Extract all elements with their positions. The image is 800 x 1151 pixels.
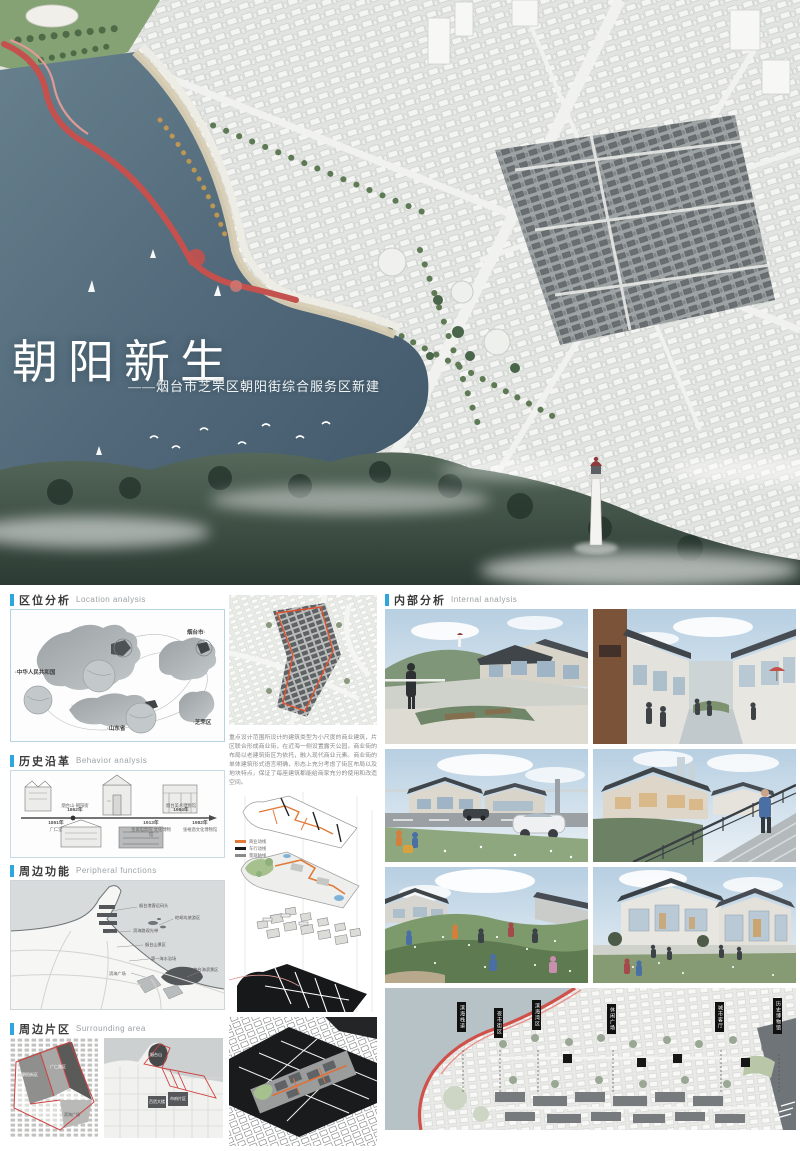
timeline-entry-1851: 1851年广仁堂 — [41, 821, 71, 832]
render-street-cars — [385, 749, 588, 862]
internal-title-zh: 内部分析 — [394, 592, 446, 608]
section-header-functions: 周边功能 Peripheral functions — [10, 864, 225, 877]
section-header-surrounding: 周边片区 Surrounding area — [10, 1022, 225, 1035]
timeline-entry-1984: 烟台美术博物馆1984年 — [159, 803, 203, 814]
render-grass-hill — [385, 867, 588, 983]
left-column: 区位分析 Location analysis — [10, 585, 225, 1132]
surr-right-label-2: 市府片区 — [170, 1096, 186, 1102]
legend-label-0: 商业动线 — [249, 839, 266, 845]
timeline-entry-1982: 1982年张裕酒文化博物馆 — [177, 821, 223, 832]
model-tag-1: 夜市街区 — [494, 1008, 503, 1038]
label-shandong: ·山东省 — [107, 726, 125, 732]
presentation-poster: 朝阳新生 ——烟台市芝罘区朝阳街综合服务区新建 区位分析 Location an… — [0, 0, 800, 1132]
timeline-entry-1913: 1913年金城电影院 文化博物馆 — [129, 821, 173, 837]
surrounding-map-right: 烟台山 百货大楼 市府片区 — [104, 1038, 223, 1138]
layer-landscape — [241, 852, 359, 908]
hero-aerial-illustration — [0, 0, 800, 585]
render-grid — [385, 609, 796, 983]
legend-swatch-gray — [235, 854, 246, 857]
render-railing-view — [593, 749, 796, 862]
legend-swatch-black — [235, 847, 246, 850]
accent-bar-icon — [10, 755, 14, 767]
label-yantai: 烟台市· — [187, 630, 205, 636]
layer-figureground — [229, 964, 367, 1012]
accent-bar-icon — [10, 594, 14, 606]
func-label-1: 崆峒岛旅游区 — [175, 915, 200, 920]
render-street-canyon — [593, 609, 796, 744]
location-title-en: Location analysis — [76, 595, 146, 604]
model-tag-5: 历史博物馆 — [773, 998, 782, 1034]
func-label-2: 滨海路观光带 — [133, 928, 158, 933]
legend-label-2: 景观轴线 — [249, 853, 266, 859]
model-tag-0: 滨海栈道 — [457, 1002, 466, 1032]
context-axon-map — [229, 1017, 377, 1151]
func-label-6: 东炮台海滨景区 — [189, 967, 218, 972]
surrounding-maps: 朝阳街区 广仁路区 滨海广场 — [10, 1038, 225, 1138]
analysis-board: 区位分析 Location analysis — [0, 585, 800, 1132]
functions-title-zh: 周边功能 — [19, 863, 71, 879]
functions-map: 烟台港客运码头 崆峒岛旅游区 滨海路观光带 烟台山景区 第一海水浴场 滨海广场 … — [10, 880, 225, 1010]
location-analysis-map: ·中华人民共和国 烟台市· ·山东省 ·芝罘区 — [10, 609, 225, 742]
surrounding-map-left: 朝阳街区 广仁路区 滨海广场 — [10, 1038, 98, 1138]
render-plaza-overlook — [385, 609, 588, 744]
history-title-en: Behavior analysis — [76, 756, 147, 765]
func-label-4: 第一海水浴场 — [151, 956, 176, 961]
poster-subtitle: ——烟台市芝罘区朝阳街综合服务区新建 — [128, 376, 380, 395]
legend-label-1: 车行动线 — [249, 846, 266, 852]
axon-legend: 商业动线 车行动线 景观轴线 — [235, 838, 266, 859]
section-header-internal: 内部分析 Internal analysis — [385, 593, 796, 606]
section-header-history: 历史沿革 Behavior analysis — [10, 754, 225, 767]
surr-left-label-2: 滨海广场 — [64, 1112, 80, 1118]
design-description: 重点设计范围所设计的建筑类型为小尺度的商业建筑，片区联合形成商业街，在近海一侧设… — [229, 734, 377, 788]
exploded-axon-diagram: 商业动线 车行动线 景观轴线 — [229, 790, 377, 1017]
model-tag-3: 休闲广场 — [607, 1004, 616, 1034]
accent-bar-icon — [10, 1023, 14, 1035]
func-label-0: 烟台港客运码头 — [139, 903, 168, 908]
timeline-entry-1862: 烟台山·朝阳街1862年 — [55, 803, 95, 814]
accent-bar-icon — [10, 865, 14, 877]
hero-render: 朝阳新生 ——烟台市芝罘区朝阳街综合服务区新建 — [0, 0, 800, 585]
history-title-zh: 历史沿革 — [19, 753, 71, 769]
func-label-5: 滨海广场 — [109, 971, 126, 976]
legend-swatch-orange — [235, 840, 246, 843]
accent-bar-icon — [385, 594, 389, 606]
model-tag-2: 滨海湾区 — [532, 1000, 541, 1030]
model-aerial: 滨海栈道 夜市街区 滨海湾区 休闲广场 城市客厅 历史博物馆 — [385, 988, 796, 1130]
func-label-3: 烟台山景区 — [145, 942, 166, 947]
layer-buildings — [256, 897, 362, 958]
render-glass-plaza — [593, 867, 796, 983]
surr-left-label-0: 朝阳街区 — [22, 1072, 38, 1078]
surr-right-label-1: 百货大楼 — [149, 1099, 165, 1105]
surr-left-label-1: 广仁路区 — [50, 1064, 66, 1070]
functions-title-en: Peripheral functions — [76, 866, 157, 875]
surrounding-title-en: Surrounding area — [76, 1024, 146, 1033]
label-zhifu: ·芝罘区 — [193, 720, 211, 726]
model-tag-4: 城市客厅 — [715, 1002, 724, 1032]
section-header-location: 区位分析 Location analysis — [10, 593, 225, 606]
location-title-zh: 区位分析 — [19, 592, 71, 608]
surr-right-label-0: 烟台山 — [150, 1052, 162, 1058]
middle-column: 重点设计范围所设计的建筑类型为小尺度的商业建筑，片区联合形成商业街，在近海一侧设… — [229, 585, 377, 1132]
history-timeline: 1851年广仁堂 烟台山·朝阳街1862年 1913年金城电影院 文化博物馆 烟… — [10, 770, 225, 858]
surrounding-title-zh: 周边片区 — [19, 1021, 71, 1037]
siteplan-axon — [229, 595, 377, 730]
label-china: ·中华人民共和国 — [15, 670, 55, 676]
zhifu-map — [179, 691, 214, 722]
right-column: 内部分析 Internal analysis — [385, 585, 796, 1132]
internal-title-en: Internal analysis — [451, 595, 517, 604]
